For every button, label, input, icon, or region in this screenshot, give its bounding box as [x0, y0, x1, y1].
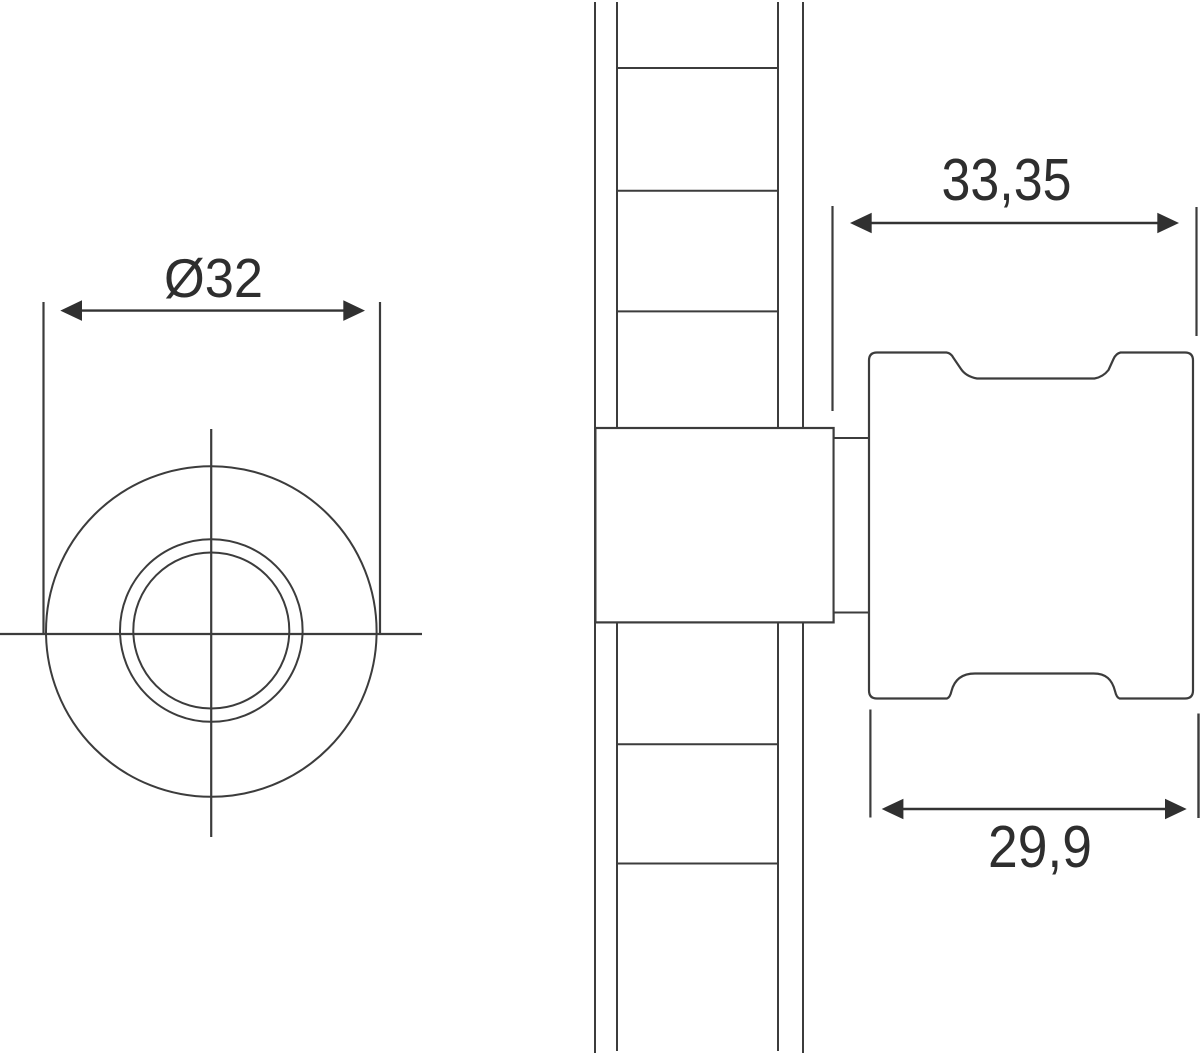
svg-text:29,9: 29,9	[988, 814, 1092, 880]
svg-text:Ø32: Ø32	[164, 247, 263, 309]
svg-text:33,35: 33,35	[942, 147, 1072, 213]
